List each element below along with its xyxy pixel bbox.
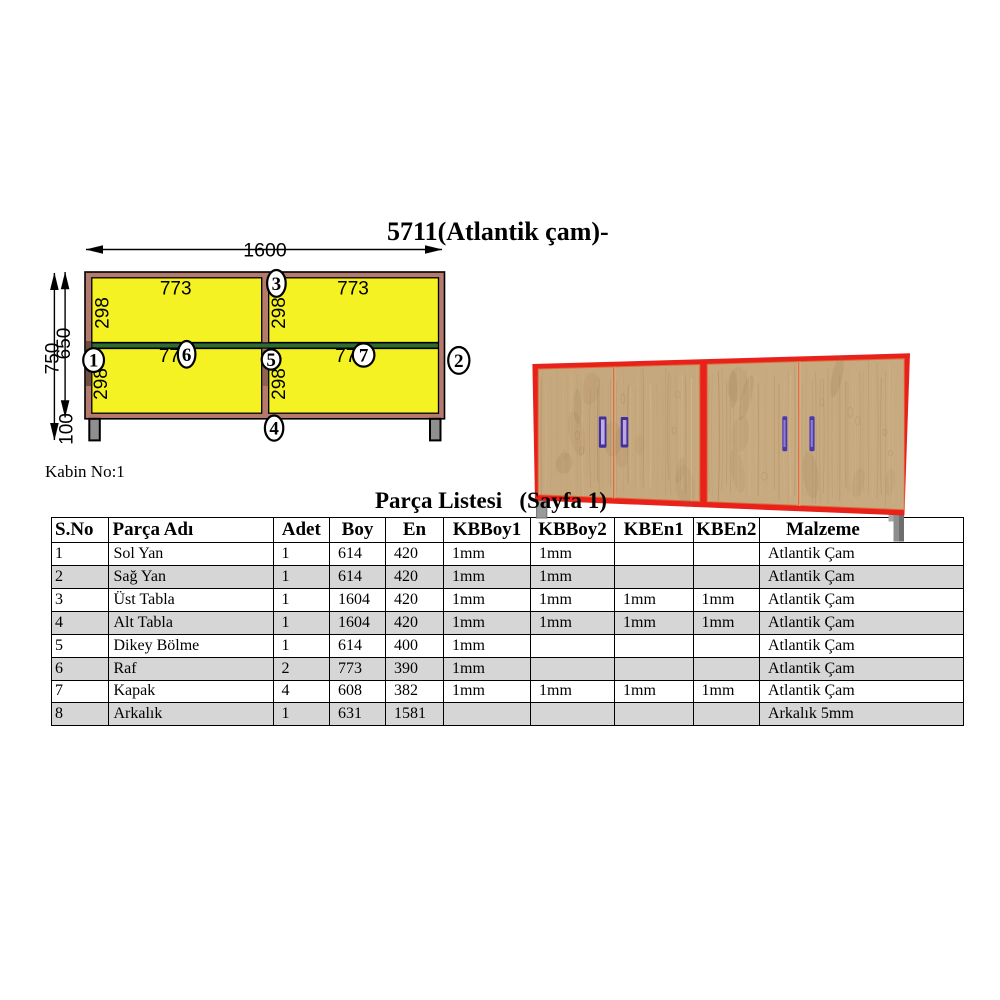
svg-text:298: 298 — [269, 297, 290, 329]
svg-text:1: 1 — [89, 351, 99, 372]
svg-text:4: 4 — [269, 419, 279, 440]
svg-text:3: 3 — [272, 274, 282, 295]
svg-text:298: 298 — [269, 368, 290, 400]
svg-text:773: 773 — [160, 279, 192, 300]
svg-text:650: 650 — [54, 328, 75, 360]
svg-text:1600: 1600 — [243, 240, 287, 262]
svg-text:100: 100 — [57, 413, 78, 445]
svg-text:773: 773 — [337, 279, 369, 300]
svg-text:2: 2 — [454, 351, 464, 372]
svg-text:7: 7 — [359, 346, 369, 367]
svg-text:298: 298 — [93, 297, 114, 329]
svg-text:6: 6 — [182, 345, 192, 366]
svg-text:5: 5 — [266, 350, 276, 371]
